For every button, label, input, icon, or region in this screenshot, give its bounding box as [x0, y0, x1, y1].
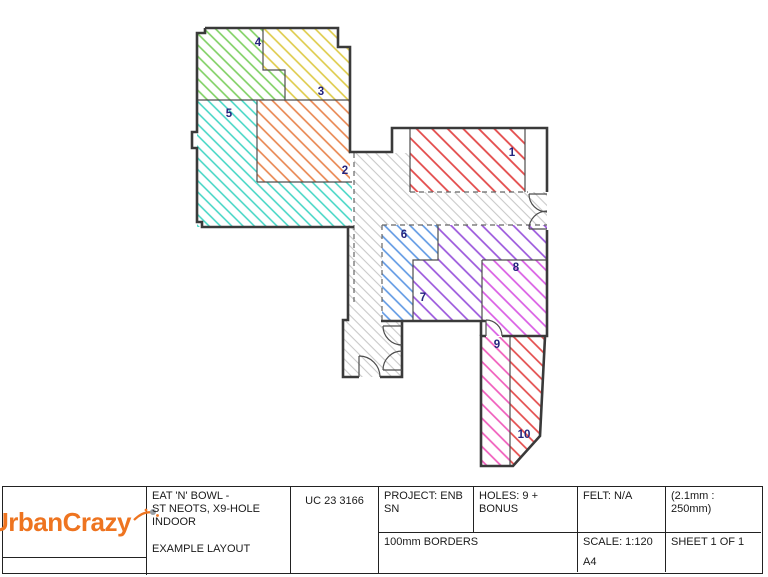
floor-plan: 1 2 3 4 5 6 7 8 9 10: [0, 0, 768, 482]
title-block: UrbanCrazy EAT 'N' BOWL - ST NEOTS, X9-H…: [2, 486, 763, 574]
drawing-page: 1 2 3 4 5 6 7 8 9 10 UrbanCrazy: [0, 0, 768, 577]
drawing-number: UC 23 3166: [305, 495, 364, 507]
corridor-vestibule: [343, 321, 402, 377]
corridor-band: [411, 192, 547, 225]
corridor-vertical: [348, 225, 382, 321]
zone-9-label: 9: [494, 339, 500, 351]
zone-2-area: [257, 100, 350, 182]
logo-cell: UrbanCrazy: [3, 487, 147, 558]
pen-scale-value: (2.1mm : 250mm): [671, 490, 714, 515]
logo: UrbanCrazy: [0, 509, 159, 535]
project-value: PROJECT: ENB SN: [384, 490, 463, 515]
zone-5-label: 5: [226, 108, 233, 120]
zone-2-label: 2: [342, 165, 348, 177]
project-name-line: EAT 'N' BOWL -: [152, 490, 285, 503]
corridor-upper-left: [354, 153, 411, 225]
holes-value: HOLES: 9 + BONUS: [479, 490, 538, 515]
zone-1-area: [410, 129, 525, 192]
paper-size: A4: [583, 556, 660, 569]
project-name-cell: EAT 'N' BOWL - ST NEOTS, X9-HOLE INDOOR …: [147, 487, 291, 573]
holes-cell: HOLES: 9 + BONUS: [474, 487, 578, 533]
zone-1-label: 1: [509, 147, 516, 159]
logo-text: UrbanCrazy: [0, 509, 131, 535]
zone-9-area: [481, 337, 510, 466]
pen-scale-cell: (2.1mm : 250mm): [666, 487, 761, 533]
zone-10-label: 10: [518, 429, 531, 441]
sheet-cell: SHEET 1 OF 1: [666, 533, 761, 572]
sheet-value: SHEET 1 OF 1: [671, 536, 744, 548]
felt-cell: FELT: N/A: [578, 487, 666, 533]
layout-label: EXAMPLE LAYOUT: [152, 543, 285, 556]
project-name-line: INDOOR: [152, 516, 285, 529]
zone-6-label: 6: [401, 229, 407, 241]
project-cell: PROJECT: ENB SN: [379, 487, 474, 533]
borders-value: 100mm BORDERS: [384, 536, 478, 548]
zone-4-label: 4: [255, 37, 262, 49]
zone-7-label: 7: [420, 292, 426, 304]
scale-value: SCALE: 1:120: [583, 536, 660, 549]
zone-10-area: [510, 337, 545, 466]
borders-cell: 100mm BORDERS: [379, 533, 578, 572]
felt-value: FELT: N/A: [583, 490, 632, 502]
zone-3-label: 3: [318, 86, 324, 98]
empty-cell: [3, 558, 147, 575]
zone-8-label: 8: [513, 262, 520, 274]
project-name-line: ST NEOTS, X9-HOLE: [152, 503, 285, 516]
drawing-number-cell: UC 23 3166: [291, 487, 379, 573]
scale-cell: SCALE: 1:120 A4: [578, 533, 666, 572]
